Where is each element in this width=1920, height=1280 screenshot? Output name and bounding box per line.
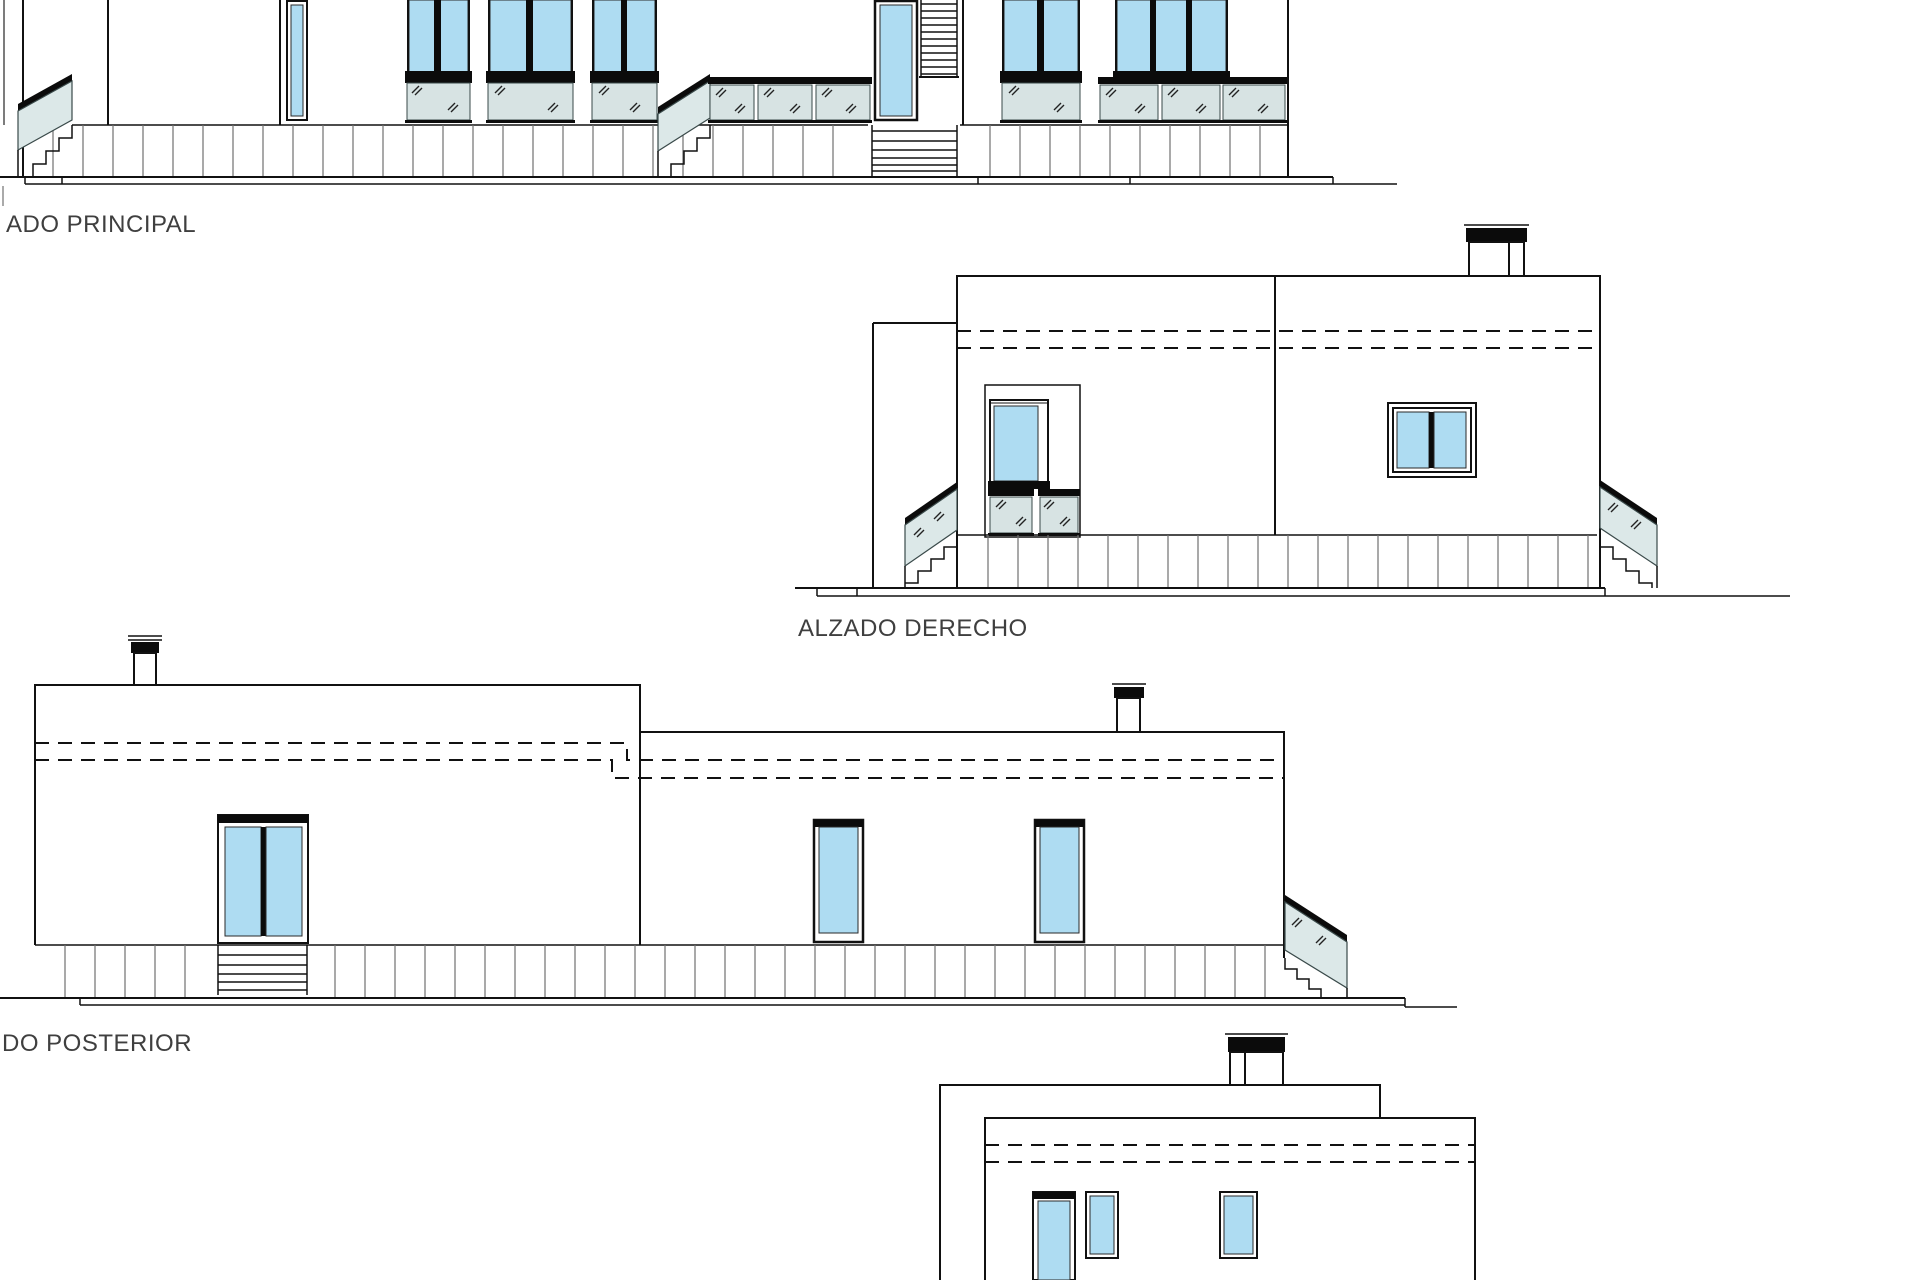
roof-dashed-lines [35,743,1284,760]
chimney [1225,1034,1288,1085]
ground-line [795,588,1790,596]
roof-dashed-lines [957,331,1600,348]
door-steps [218,945,307,995]
entrance-door [875,1,917,120]
alzado-derecho-drawing [795,225,1790,596]
plinth-ticks [988,535,1588,588]
stair-railing-left [905,482,957,588]
narrow-window-1 [814,820,863,942]
label-alzado-derecho: ALZADO DERECHO [798,615,1028,643]
roof-dashed-lines [35,760,1284,778]
window-2 [1086,1192,1118,1258]
right-balustrade-panels [1098,77,1287,123]
ground-line [0,998,1457,1007]
stair-railing-right [1600,480,1657,588]
window-e [1113,0,1230,78]
porch-window-with-balustrade [985,385,1080,537]
alzado-posterior-drawing [0,636,1457,1007]
two-pane-window [1388,403,1476,477]
alzado-partial-bottom-drawing [940,1034,1475,1280]
plinth-ticks [53,125,1260,177]
window-a-with-balustrade [405,0,472,123]
chimney-right [1112,684,1146,732]
narrow-window [287,1,307,120]
label-alzado-principal: ADO PRINCIPAL [6,211,196,239]
terrace-balustrade-panels [708,77,872,123]
roof-dashed-lines [985,1145,1475,1162]
narrow-window-2 [1035,820,1084,942]
label-alzado-posterior: DO POSTERIOR [2,1030,192,1058]
window-1 [1033,1192,1075,1280]
stair-railing-right [1285,895,1347,998]
window-3 [1220,1192,1257,1258]
alzado-principal-drawing [0,0,1397,206]
chimney [1464,225,1529,276]
window-c-with-balustrade [590,0,659,123]
ground-line [0,177,1397,206]
drawing-sheet: ADO PRINCIPAL ALZADO DERECHO DO POSTERIO… [0,0,1920,1280]
stair-railing-left [18,74,72,177]
window-d-with-balustrade [1000,0,1082,123]
rear-door [218,815,308,995]
window-b-with-balustrade [486,0,575,123]
chimney-left [128,636,162,685]
